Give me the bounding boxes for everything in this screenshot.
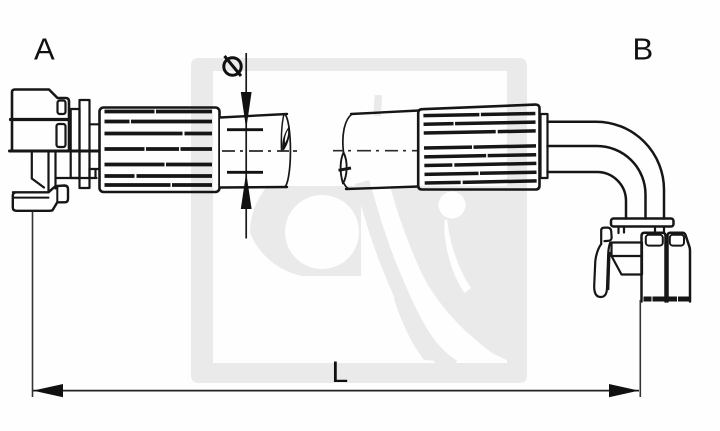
svg-text:A: A xyxy=(34,32,55,67)
svg-text:B: B xyxy=(633,32,654,67)
